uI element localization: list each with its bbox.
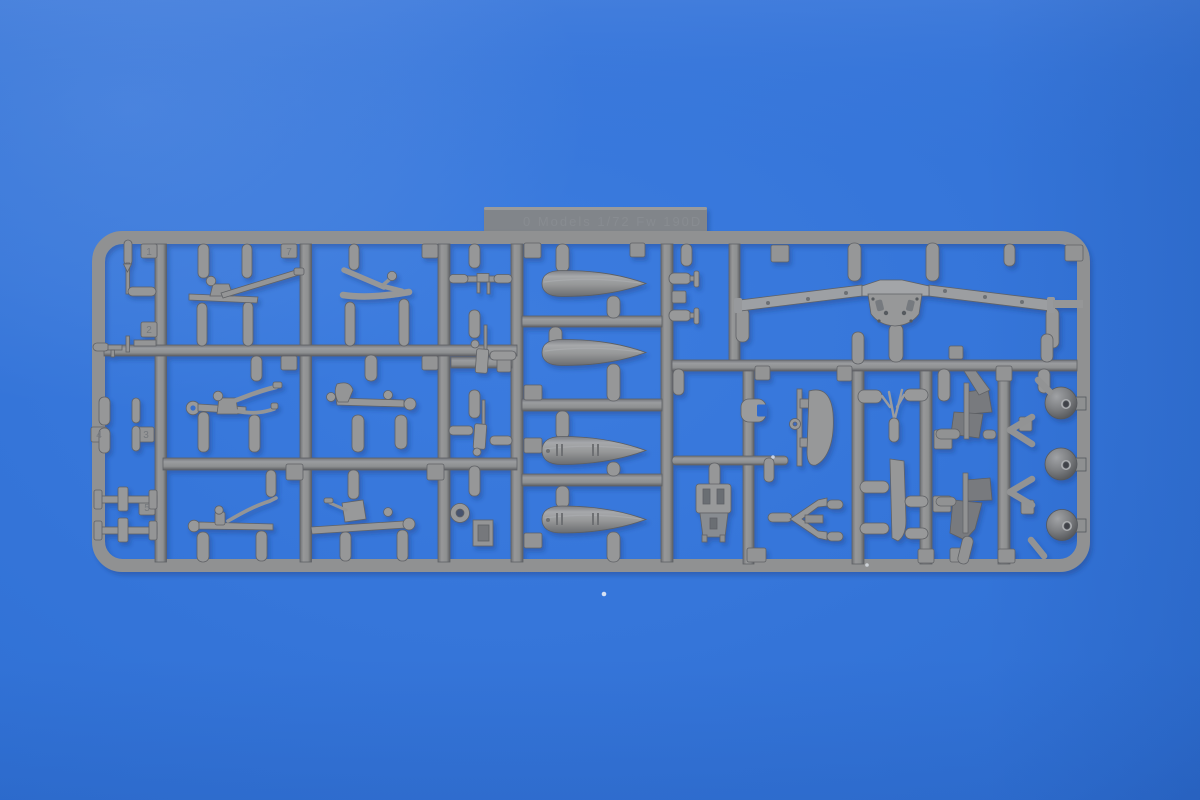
svg-text:7: 7 <box>286 247 292 258</box>
svg-text:3: 3 <box>143 430 149 441</box>
svg-text:5: 5 <box>144 503 150 514</box>
svg-text:0 Models 1/72 Fw 190D: 0 Models 1/72 Fw 190D <box>523 214 702 229</box>
svg-text:1: 1 <box>146 247 152 258</box>
svg-text:4: 4 <box>96 430 102 441</box>
svg-text:2: 2 <box>146 325 152 336</box>
